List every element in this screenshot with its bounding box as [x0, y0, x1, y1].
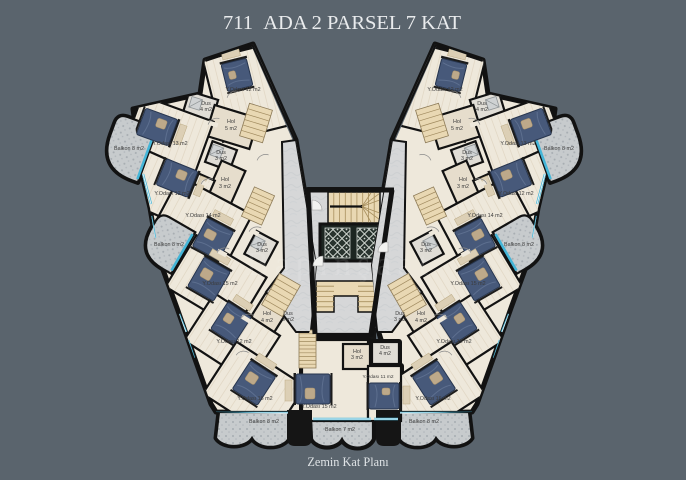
- svg-text:Balkon 8 m2: Balkon 8 m2: [249, 419, 279, 425]
- svg-text:3 m2: 3 m2: [219, 184, 231, 190]
- svg-text:Hol: Hol: [459, 177, 467, 183]
- svg-text:Balkon 8 m2: Balkon 8 m2: [544, 146, 574, 152]
- svg-text:Y.Odası 12 m2: Y.Odası 12 m2: [154, 191, 189, 197]
- svg-text:Bapınşaat: Bapınşaat: [246, 246, 434, 283]
- svg-text:Balkon 7 m2: Balkon 7 m2: [325, 427, 355, 433]
- svg-text:Y.Odası 12 m2: Y.Odası 12 m2: [498, 191, 533, 197]
- svg-text:Y.Odası 15 m2: Y.Odası 15 m2: [450, 281, 485, 287]
- svg-text:Y.Odası 16 m2: Y.Odası 16 m2: [237, 396, 272, 402]
- svg-text:4 m2: 4 m2: [261, 318, 273, 324]
- svg-text:Y.Odası 11 m2: Y.Odası 11 m2: [362, 374, 393, 380]
- svg-text:Y.Odası 12 m2: Y.Odası 12 m2: [436, 339, 471, 345]
- svg-text:4 m2: 4 m2: [415, 318, 427, 324]
- svg-text:Y.Odası 13 m2: Y.Odası 13 m2: [500, 141, 535, 147]
- svg-text:Balkon 8 m2: Balkon 8 m2: [114, 146, 144, 152]
- svg-text:Hol: Hol: [453, 119, 461, 125]
- svg-text:3 m2: 3 m2: [351, 355, 363, 361]
- svg-text:711 ADA 2 PARSEL 7 KAT: 711 ADA 2 PARSEL 7 KAT: [223, 12, 462, 34]
- svg-text:Y.Odası 14 m2: Y.Odası 14 m2: [467, 213, 502, 219]
- svg-text:Balkon 8 m2: Balkon 8 m2: [154, 242, 184, 248]
- svg-text:3 m2: 3 m2: [215, 156, 227, 162]
- svg-text:Y.Odası 14 m2: Y.Odası 14 m2: [185, 213, 220, 219]
- svg-text:3 m2: 3 m2: [461, 156, 473, 162]
- svg-text:Hol: Hol: [263, 311, 271, 317]
- svg-text:Y.Odası 12 m2: Y.Odası 12 m2: [225, 87, 260, 93]
- svg-text:Zemin Kat Planı: Zemin Kat Planı: [307, 455, 389, 469]
- svg-text:Y.Odası 15 m2: Y.Odası 15 m2: [301, 404, 336, 410]
- svg-text:Hol: Hol: [221, 177, 229, 183]
- svg-text:4 m2: 4 m2: [200, 107, 212, 113]
- svg-text:3 m2: 3 m2: [457, 184, 469, 190]
- svg-text:5 m2: 5 m2: [225, 126, 237, 132]
- svg-text:Y.Odası 12 m2: Y.Odası 12 m2: [427, 87, 462, 93]
- svg-text:Y.Odası 12 m2: Y.Odası 12 m2: [216, 339, 251, 345]
- svg-text:Y.Odası 16 m2: Y.Odası 16 m2: [415, 396, 450, 402]
- svg-text:3 m2: 3 m2: [394, 317, 406, 323]
- svg-text:Y.Odası 15 m2: Y.Odası 15 m2: [202, 281, 237, 287]
- svg-text:5 m2: 5 m2: [451, 126, 463, 132]
- svg-text:Balkon 8 m2: Balkon 8 m2: [504, 242, 534, 248]
- svg-text:Hol: Hol: [417, 311, 425, 317]
- svg-text:3 m2: 3 m2: [282, 317, 294, 323]
- svg-text:Balkon 8 m2: Balkon 8 m2: [409, 419, 439, 425]
- svg-text:Hol: Hol: [227, 119, 235, 125]
- svg-text:4 m2: 4 m2: [476, 107, 488, 113]
- svg-text:Y.Odası 13 m2: Y.Odası 13 m2: [152, 141, 187, 147]
- svg-text:4 m2: 4 m2: [379, 351, 391, 357]
